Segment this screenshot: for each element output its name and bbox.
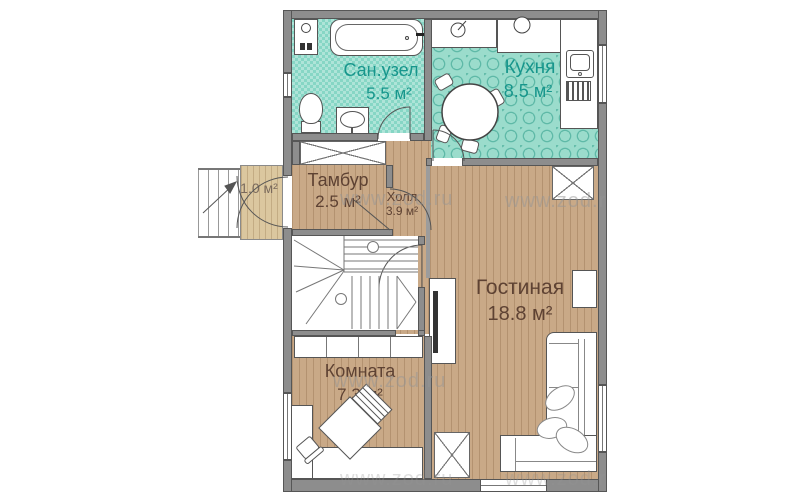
porch-steps — [198, 168, 240, 238]
watermark: www.zod.ru — [340, 188, 453, 211]
watermark: www.zod.ru — [340, 468, 453, 491]
watermark: www.zod.ru — [505, 468, 607, 491]
porch-area-label: 1.0 м² — [230, 180, 288, 196]
watermark: www.zod.ru — [505, 190, 607, 213]
porch-deck — [240, 165, 283, 240]
floor-plan: Сан.узел 5.5 м² Кухня 8.5 м² Тамбур 2.5 … — [0, 0, 795, 496]
watermark: www.zod.ru — [333, 370, 446, 393]
watermark-layer: www.zod.ru www.zod.ru www.zod.ru www.zod… — [283, 10, 607, 492]
